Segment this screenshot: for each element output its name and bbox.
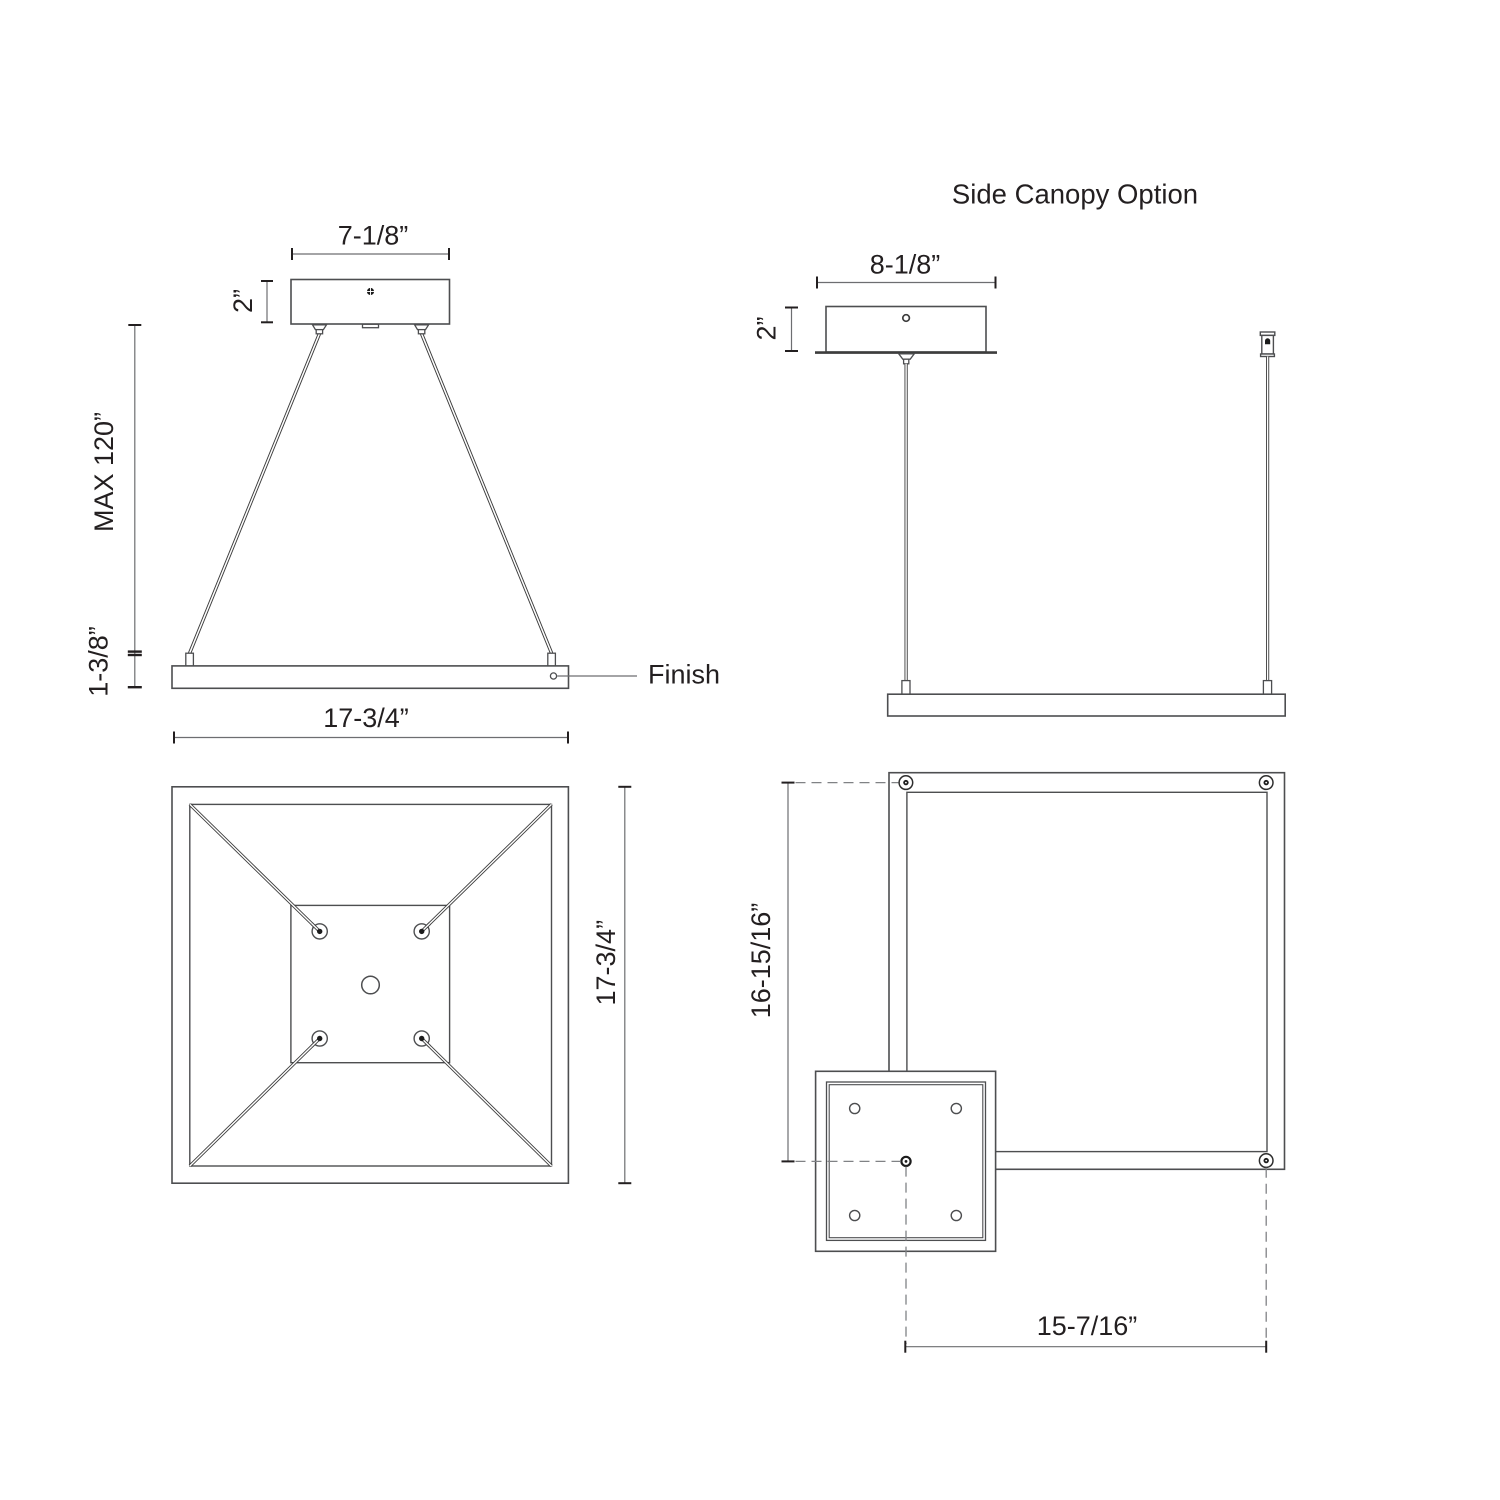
svg-text:Finish: Finish [648,660,720,690]
svg-text:1-3/8”: 1-3/8” [84,626,114,697]
svg-text:8-1/8”: 8-1/8” [870,250,941,280]
svg-text:16-15/16”: 16-15/16” [746,903,776,1019]
svg-text:Side Canopy Option: Side Canopy Option [952,179,1198,210]
svg-text:17-3/4”: 17-3/4” [323,703,409,733]
svg-text:17-3/4”: 17-3/4” [591,920,621,1006]
svg-text:MAX 120”: MAX 120” [89,412,119,532]
svg-text:2”: 2” [752,316,782,340]
svg-text:7-1/8”: 7-1/8” [338,220,409,250]
svg-text:15-7/16”: 15-7/16” [1037,1311,1138,1341]
svg-text:2”: 2” [228,289,258,313]
